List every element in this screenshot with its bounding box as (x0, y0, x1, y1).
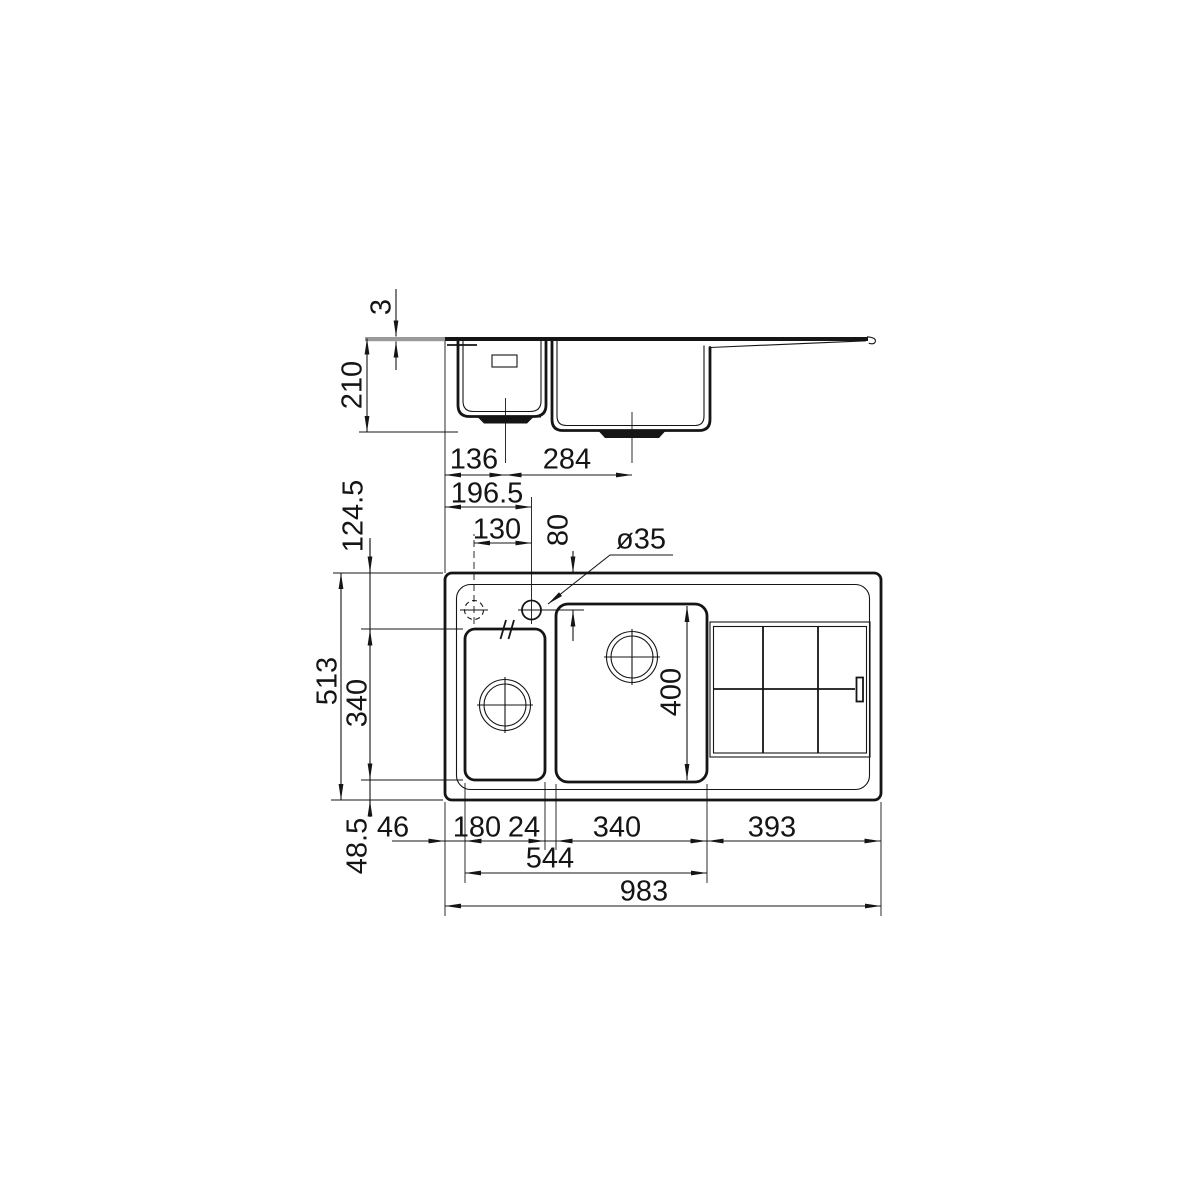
dim-overall-depth: 513 (311, 657, 343, 705)
dim-bowl-depth: 210 (336, 361, 368, 409)
dim-bowl-front-back: 340 (341, 679, 373, 727)
dim-front-edge-offset: 124.5 (337, 480, 369, 553)
dim-rim-thickness: 3 (365, 299, 397, 315)
overflow-hole-profile (492, 355, 517, 367)
sink-technical-drawing: 3 210 136 284 (0, 0, 1200, 1200)
dim-tap-hole-offset: 196.5 (451, 477, 524, 509)
alt-tap-hole (460, 534, 488, 624)
side-elevation-view: 3 210 136 284 (336, 289, 875, 573)
dim-tap-hole-diameter: ø35 (616, 523, 666, 555)
small-bowl-drain (477, 677, 533, 733)
drainboard-underside-profile (710, 341, 866, 348)
rim-edge-profile (867, 337, 875, 344)
drainboard-slot (857, 678, 864, 702)
dim-small-drain-offset: 136 (450, 443, 498, 475)
dim-tap-hole-spacing: 130 (473, 513, 521, 545)
main-bowl-drain (604, 629, 660, 685)
dim-small-bowl-width: 180 (453, 811, 501, 843)
plan-top-dimensions: 196.5 130 80 ø35 (445, 477, 673, 641)
dim-drainer-width: 393 (748, 811, 796, 843)
drainboard (710, 622, 870, 757)
plan-bottom-dimensions: 46 180 24 340 393 544 983 (377, 782, 881, 916)
main-bowl-length-dimension: 400 (655, 606, 687, 780)
tap-hole-leader-line (548, 555, 673, 604)
dim-drain-spacing: 284 (543, 443, 591, 475)
dim-overall-width: 983 (620, 875, 668, 907)
dim-rear-offset: 48.5 (341, 818, 373, 874)
countertop-extension-line (365, 337, 445, 341)
drawing-canvas: 3 210 136 284 (0, 0, 1200, 1200)
sink-rim-profile (445, 337, 868, 341)
dim-bowls-span: 544 (526, 842, 574, 874)
dim-main-bowl-length: 400 (655, 668, 687, 716)
dim-bowl-gap: 24 (508, 811, 540, 843)
dim-left-gap: 46 (377, 811, 409, 843)
dim-tap-hole-top-offset: 80 (542, 514, 574, 546)
plan-view: 196.5 130 80 ø35 124.5 340 48.5 513 (311, 477, 881, 916)
dim-main-bowl-width: 340 (593, 811, 641, 843)
